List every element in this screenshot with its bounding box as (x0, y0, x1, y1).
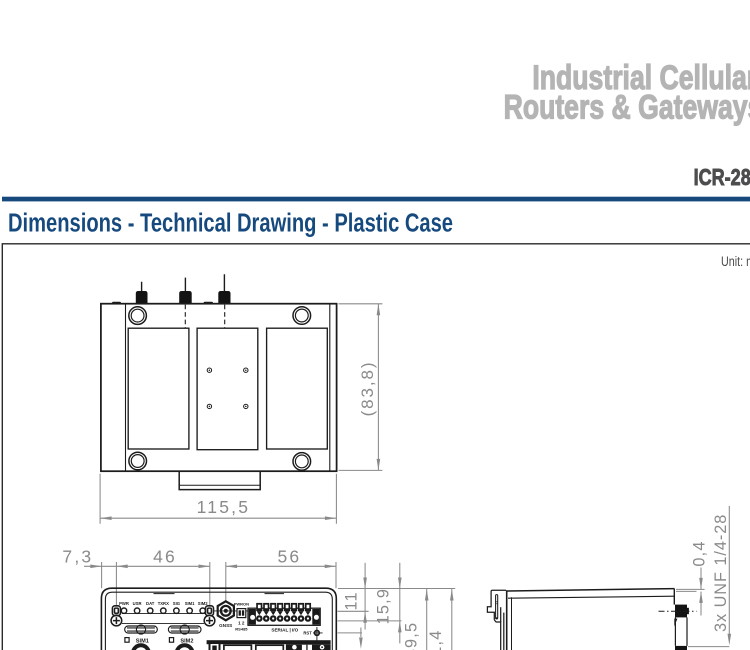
svg-text:Routers & Gateways: Routers & Gateways (504, 88, 750, 126)
svg-text:DAT: DAT (146, 601, 155, 606)
svg-text:SIM1: SIM1 (136, 638, 149, 644)
svg-text:Dimensions - Technical Drawing: Dimensions - Technical Drawing - Plastic… (8, 208, 453, 237)
svg-text:ICR-2834: ICR-2834 (694, 165, 750, 191)
svg-text:SIM2: SIM2 (180, 638, 193, 644)
svg-text:RS485: RS485 (235, 627, 248, 632)
svg-text:0,4: 0,4 (691, 540, 709, 566)
svg-text:(83,8): (83,8) (358, 361, 377, 417)
svg-text:SIM2: SIM2 (198, 601, 208, 606)
svg-text:PWR: PWR (119, 601, 129, 606)
svg-text:49,5: 49,5 (403, 622, 421, 650)
svg-text:7,3: 7,3 (62, 546, 93, 566)
svg-text:11: 11 (343, 591, 361, 610)
svg-text:Unit: mm: Unit: mm (721, 254, 750, 270)
svg-text:61,4: 61,4 (427, 630, 445, 650)
svg-text:RST: RST (303, 631, 312, 636)
svg-text:SERIAL | I/O: SERIAL | I/O (271, 627, 298, 632)
svg-text:SIM1: SIM1 (185, 601, 195, 606)
svg-text:SIG: SIG (173, 601, 180, 606)
svg-text:TXRX: TXRX (158, 601, 169, 606)
svg-text:1 2: 1 2 (238, 620, 245, 625)
svg-text:PWRON: PWRON (234, 601, 249, 606)
svg-text:46: 46 (153, 546, 177, 566)
svg-text:3x UNF 1/4-28: 3x UNF 1/4-28 (712, 514, 730, 632)
svg-text:15,9: 15,9 (375, 588, 393, 625)
svg-text:USR: USR (133, 601, 142, 606)
svg-text:56: 56 (277, 546, 301, 566)
svg-text:115,5: 115,5 (197, 497, 251, 517)
svg-text:GNSS: GNSS (219, 623, 232, 628)
